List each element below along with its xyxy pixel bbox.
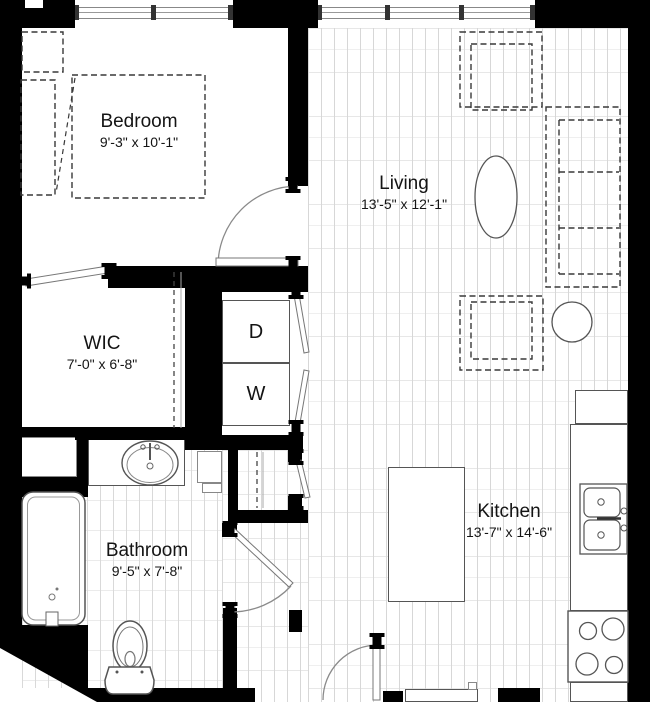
sofa (546, 107, 620, 287)
hall-closet-rod (257, 452, 263, 508)
kitchen-sink (580, 484, 627, 554)
dryer-label: D (236, 321, 276, 344)
bedroom-door (216, 186, 298, 266)
wic-door (26, 266, 108, 286)
washer-label: W (236, 383, 276, 406)
armchair-top (460, 32, 542, 110)
entry-door (323, 643, 380, 700)
bathroom-sink (122, 441, 178, 485)
bed (72, 75, 205, 198)
laundry-doors (294, 294, 309, 429)
bathroom-door (229, 527, 293, 612)
bathtub (22, 492, 85, 626)
plan-linework (0, 0, 650, 702)
nightstand (22, 32, 63, 72)
dresser (21, 78, 75, 195)
hall-closet-door (296, 460, 310, 498)
floorplan: Bedroom 9'-3" x 10'-1" Living 13'-5" x 1… (0, 0, 650, 702)
armchair-bottom (460, 296, 543, 370)
stove (568, 611, 628, 682)
coffee-table (475, 156, 517, 238)
toilet (105, 621, 154, 694)
side-table (552, 302, 592, 342)
wic-closet-rod (174, 272, 181, 428)
